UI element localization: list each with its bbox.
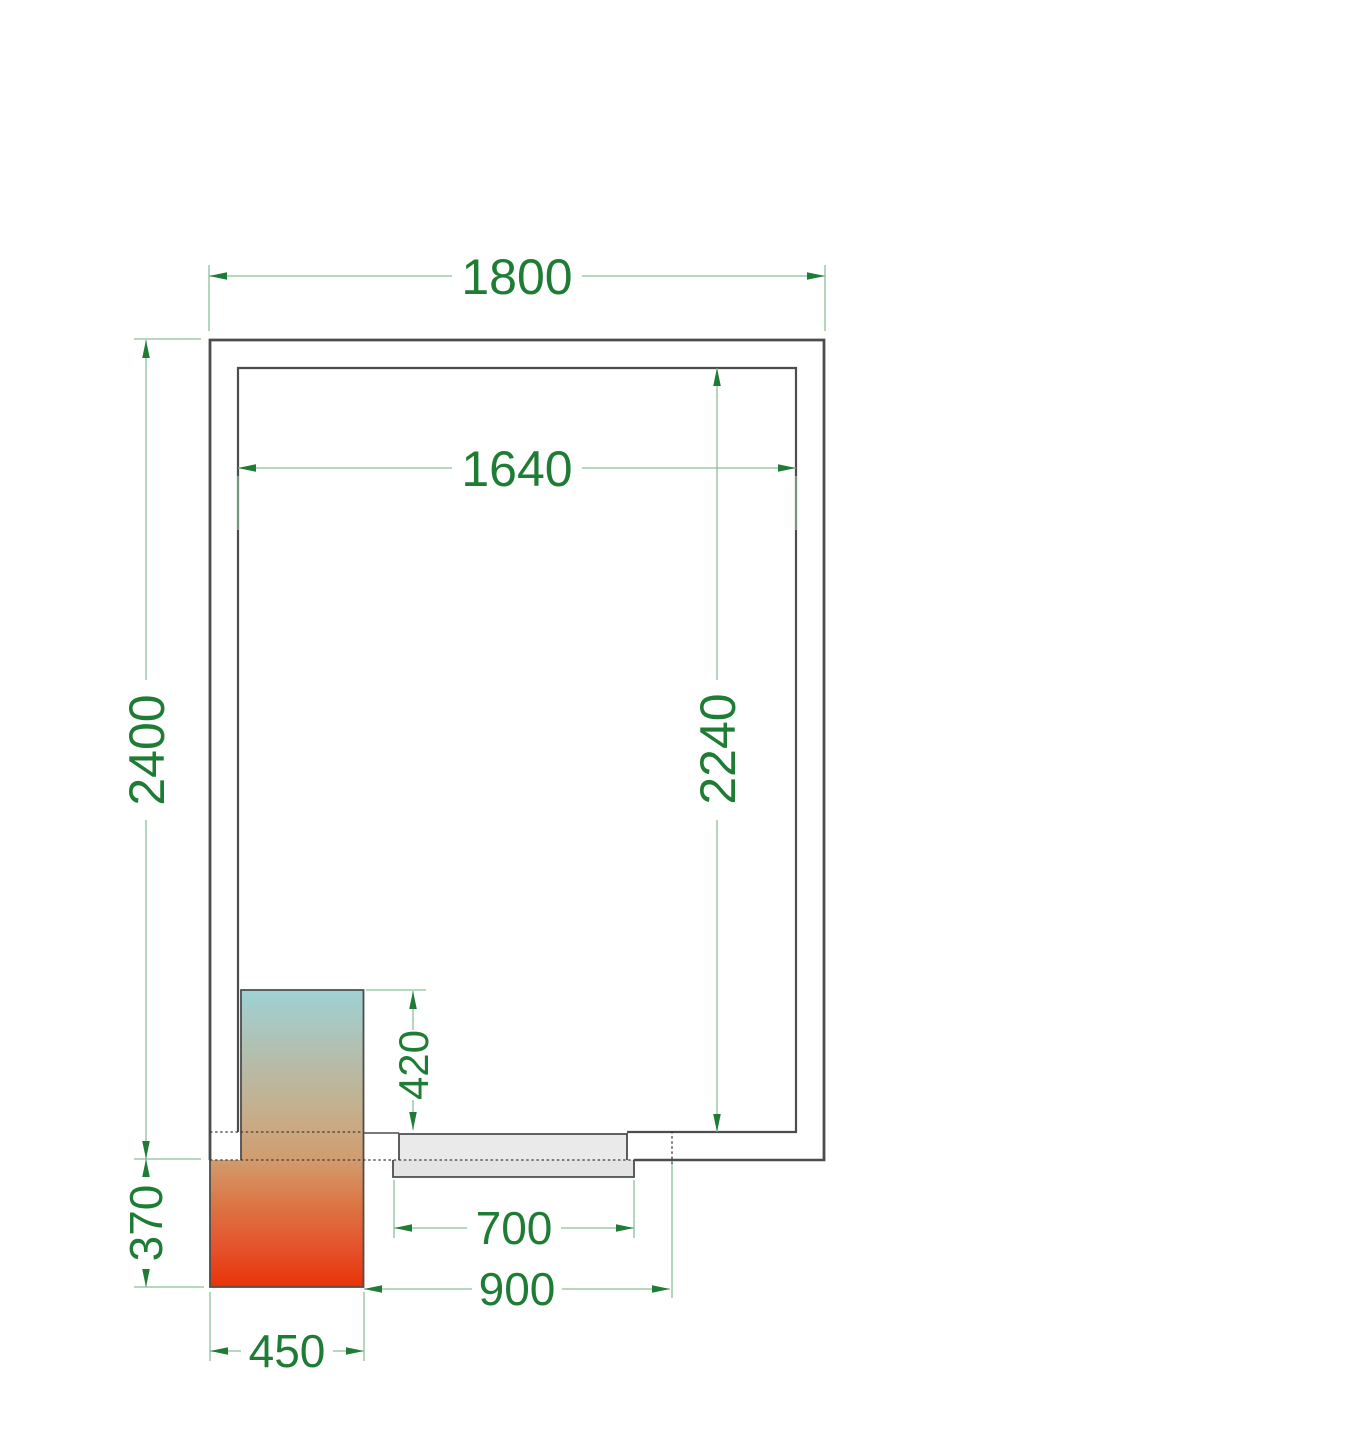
dim-370-arrow-bottom bbox=[142, 1269, 150, 1287]
floor-plan-page: 1800 1640 2400 2240 420 370 700 900 450 bbox=[0, 0, 1355, 1440]
dim-2400-arrow-bottom bbox=[142, 1141, 150, 1159]
dim-label-outer-depth: 2400 bbox=[119, 694, 175, 805]
dim-label-unit-width: 450 bbox=[249, 1325, 326, 1377]
door-leaf-upper-slab bbox=[399, 1134, 627, 1161]
dim-label-inner-width: 1640 bbox=[461, 441, 572, 497]
dim-450-arrow-right bbox=[346, 1347, 364, 1355]
dim-1640-arrow-left bbox=[238, 464, 256, 472]
dim-label-unit-depth-inside: 420 bbox=[390, 1030, 437, 1100]
dim-420-arrow-top bbox=[409, 991, 417, 1009]
dim-2240-arrow-top bbox=[713, 368, 721, 386]
condensing-unit bbox=[210, 990, 364, 1287]
dim-900-arrow-left bbox=[364, 1285, 382, 1293]
dim-2400-arrow-top bbox=[142, 340, 150, 358]
dim-1800-arrow-right bbox=[807, 272, 825, 280]
dim-label-unit-overhang: 370 bbox=[120, 1185, 172, 1262]
dim-700-arrow-left bbox=[394, 1224, 412, 1232]
dim-label-door-opening-width: 900 bbox=[479, 1263, 556, 1315]
dim-label-door-leaf-width: 700 bbox=[476, 1202, 553, 1254]
door-leaf-lower-sill bbox=[393, 1160, 634, 1177]
dim-1800-arrow-left bbox=[209, 272, 227, 280]
dim-370-arrow-top bbox=[142, 1159, 150, 1177]
condensing-unit-inside-body bbox=[241, 990, 364, 1160]
dim-450-arrow-left bbox=[210, 1347, 228, 1355]
condensing-unit-outside-body bbox=[210, 1160, 364, 1287]
dim-label-outer-width: 1800 bbox=[461, 249, 572, 305]
dim-label-inner-depth: 2240 bbox=[690, 693, 746, 804]
dim-1640-arrow-right bbox=[778, 464, 796, 472]
door-leaf bbox=[393, 1134, 634, 1178]
dim-2240-arrow-bottom bbox=[713, 1114, 721, 1132]
dim-900-arrow-right bbox=[652, 1285, 670, 1293]
dim-420-arrow-bottom bbox=[409, 1112, 417, 1130]
cold-room-floor-plan-drawing: 1800 1640 2400 2240 420 370 700 900 450 bbox=[0, 0, 1355, 1440]
dim-700-arrow-right bbox=[616, 1224, 634, 1232]
